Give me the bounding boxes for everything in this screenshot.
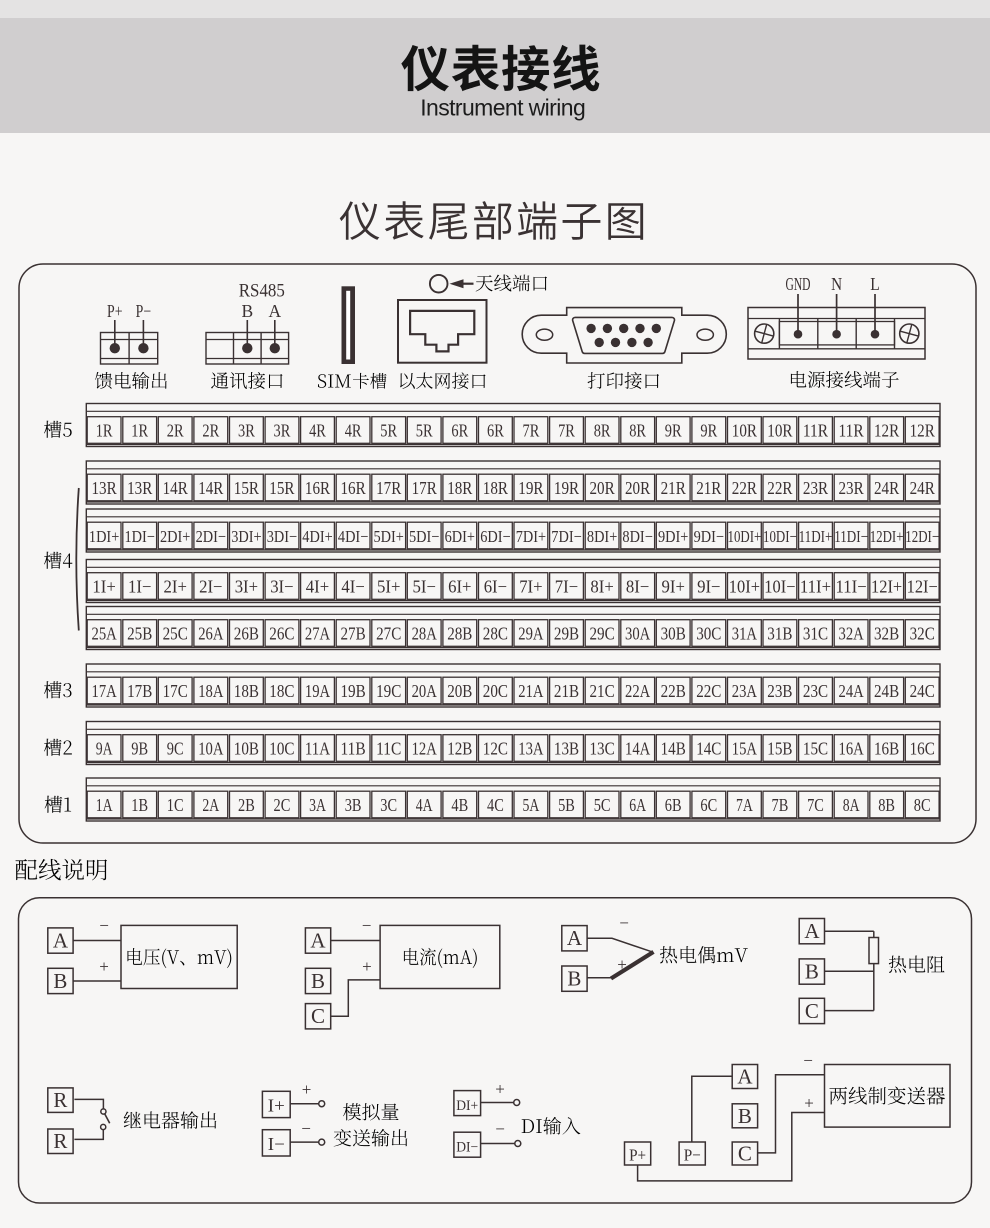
svg-text:13R: 13R xyxy=(127,478,152,498)
svg-text:30A: 30A xyxy=(625,624,650,644)
svg-text:29C: 29C xyxy=(590,624,615,644)
svg-text:B: B xyxy=(241,301,253,321)
svg-text:24C: 24C xyxy=(910,681,935,701)
svg-text:24R: 24R xyxy=(874,478,899,498)
svg-text:4R: 4R xyxy=(309,421,326,441)
svg-text:4DI−: 4DI− xyxy=(338,527,368,546)
svg-text:DI+: DI+ xyxy=(456,1098,478,1114)
svg-text:−: − xyxy=(495,1120,505,1139)
svg-text:22A: 22A xyxy=(625,681,650,701)
svg-text:31C: 31C xyxy=(803,624,828,644)
svg-text:25C: 25C xyxy=(163,624,188,644)
svg-text:8B: 8B xyxy=(878,795,895,815)
svg-text:16A: 16A xyxy=(839,739,864,759)
svg-text:21R: 21R xyxy=(661,478,686,498)
svg-text:3DI+: 3DI+ xyxy=(231,527,261,546)
svg-text:7R: 7R xyxy=(558,421,575,441)
svg-text:28B: 28B xyxy=(447,624,472,644)
svg-text:−: − xyxy=(362,916,372,935)
svg-text:13A: 13A xyxy=(518,739,543,759)
svg-text:26B: 26B xyxy=(234,624,259,644)
svg-text:8A: 8A xyxy=(843,795,860,815)
svg-text:23R: 23R xyxy=(803,478,828,498)
svg-text:9DI+: 9DI+ xyxy=(658,527,688,546)
svg-text:19B: 19B xyxy=(341,681,366,701)
svg-text:24A: 24A xyxy=(839,681,864,701)
svg-text:9I−: 9I− xyxy=(697,577,721,597)
svg-text:11DI+: 11DI+ xyxy=(799,527,833,546)
svg-text:23A: 23A xyxy=(732,681,757,701)
svg-text:2R: 2R xyxy=(167,421,184,441)
svg-text:−: − xyxy=(619,914,629,933)
svg-text:8DI+: 8DI+ xyxy=(587,527,617,546)
svg-text:6B: 6B xyxy=(665,795,682,815)
svg-text:7DI−: 7DI− xyxy=(551,527,581,546)
svg-text:27B: 27B xyxy=(341,624,366,644)
svg-text:17R: 17R xyxy=(412,478,437,498)
svg-text:1R: 1R xyxy=(131,421,148,441)
svg-text:4DI+: 4DI+ xyxy=(302,527,332,546)
svg-text:12C: 12C xyxy=(483,739,508,759)
svg-text:C: C xyxy=(311,1004,325,1028)
svg-text:1C: 1C xyxy=(167,795,184,815)
svg-text:N: N xyxy=(831,274,842,294)
svg-text:17A: 17A xyxy=(92,681,117,701)
svg-text:31B: 31B xyxy=(767,624,792,644)
svg-text:22R: 22R xyxy=(732,478,757,498)
svg-text:8R: 8R xyxy=(629,421,646,441)
svg-text:7A: 7A xyxy=(736,795,753,815)
svg-text:10I+: 10I+ xyxy=(729,577,760,597)
svg-text:+: + xyxy=(302,1080,312,1099)
svg-text:18A: 18A xyxy=(198,681,223,701)
svg-text:12DI−: 12DI− xyxy=(905,527,939,546)
svg-text:4I+: 4I+ xyxy=(306,577,330,597)
svg-text:11R: 11R xyxy=(803,421,828,441)
svg-text:23R: 23R xyxy=(839,478,864,498)
svg-text:5I+: 5I+ xyxy=(377,577,401,597)
svg-text:12I+: 12I+ xyxy=(871,577,902,597)
svg-text:10A: 10A xyxy=(198,739,223,759)
svg-text:5DI+: 5DI+ xyxy=(374,527,404,546)
svg-text:18R: 18R xyxy=(483,478,508,498)
svg-text:2A: 2A xyxy=(202,795,219,815)
svg-text:8I−: 8I− xyxy=(626,577,650,597)
svg-text:3R: 3R xyxy=(274,421,291,441)
svg-text:6A: 6A xyxy=(629,795,646,815)
svg-text:2R: 2R xyxy=(202,421,219,441)
svg-text:30C: 30C xyxy=(696,624,721,644)
svg-text:9A: 9A xyxy=(96,739,113,759)
svg-text:24R: 24R xyxy=(910,478,935,498)
svg-text:23C: 23C xyxy=(803,681,828,701)
svg-text:14B: 14B xyxy=(661,739,686,759)
svg-text:16C: 16C xyxy=(910,739,935,759)
svg-text:5DI−: 5DI− xyxy=(409,527,439,546)
svg-text:R: R xyxy=(53,1088,67,1112)
svg-text:25A: 25A xyxy=(92,624,117,644)
svg-text:3C: 3C xyxy=(380,795,397,815)
svg-text:14R: 14R xyxy=(198,478,223,498)
svg-text:2DI+: 2DI+ xyxy=(160,527,190,546)
svg-text:9B: 9B xyxy=(131,739,148,759)
svg-text:1DI−: 1DI− xyxy=(125,527,155,546)
svg-text:15R: 15R xyxy=(234,478,259,498)
svg-text:2DI−: 2DI− xyxy=(196,527,226,546)
svg-text:17C: 17C xyxy=(163,681,188,701)
svg-text:+: + xyxy=(804,1094,814,1113)
svg-text:9C: 9C xyxy=(167,739,184,759)
svg-text:4B: 4B xyxy=(451,795,468,815)
svg-text:19C: 19C xyxy=(376,681,401,701)
svg-text:28C: 28C xyxy=(483,624,508,644)
svg-text:GND: GND xyxy=(786,274,811,294)
svg-text:P−: P− xyxy=(684,1146,701,1165)
svg-text:P+: P+ xyxy=(629,1146,646,1165)
svg-text:21B: 21B xyxy=(554,681,579,701)
svg-text:15A: 15A xyxy=(732,739,757,759)
svg-text:DI−: DI− xyxy=(456,1140,478,1156)
svg-text:+: + xyxy=(617,955,627,974)
svg-text:9I+: 9I+ xyxy=(662,577,686,597)
svg-text:2I−: 2I− xyxy=(199,577,223,597)
svg-text:3I−: 3I− xyxy=(270,577,294,597)
svg-text:5A: 5A xyxy=(523,795,540,815)
svg-text:18C: 18C xyxy=(269,681,294,701)
svg-text:6I−: 6I− xyxy=(484,577,508,597)
svg-text:11C: 11C xyxy=(376,739,401,759)
svg-text:19R: 19R xyxy=(518,478,543,498)
svg-text:B: B xyxy=(567,967,581,991)
svg-text:8I+: 8I+ xyxy=(590,577,614,597)
svg-text:12B: 12B xyxy=(447,739,472,759)
svg-text:−: − xyxy=(301,1119,311,1138)
svg-text:15B: 15B xyxy=(767,739,792,759)
svg-text:3DI−: 3DI− xyxy=(267,527,297,546)
svg-text:19R: 19R xyxy=(554,478,579,498)
svg-text:1DI+: 1DI+ xyxy=(89,527,119,546)
svg-text:5I−: 5I− xyxy=(413,577,437,597)
svg-text:10DI−: 10DI− xyxy=(763,527,797,546)
svg-text:2I+: 2I+ xyxy=(164,577,188,597)
svg-text:14A: 14A xyxy=(625,739,650,759)
svg-text:24B: 24B xyxy=(874,681,899,701)
svg-text:4R: 4R xyxy=(345,421,362,441)
svg-text:10B: 10B xyxy=(234,739,259,759)
svg-text:11B: 11B xyxy=(341,739,366,759)
svg-text:26C: 26C xyxy=(269,624,294,644)
svg-text:P−: P− xyxy=(136,301,152,321)
svg-text:C: C xyxy=(738,1142,752,1166)
svg-text:22R: 22R xyxy=(767,478,792,498)
svg-text:7C: 7C xyxy=(807,795,824,815)
svg-text:10DI+: 10DI+ xyxy=(728,527,762,546)
svg-text:6DI−: 6DI− xyxy=(480,527,510,546)
svg-text:20R: 20R xyxy=(625,478,650,498)
svg-text:21R: 21R xyxy=(696,478,721,498)
svg-text:3A: 3A xyxy=(309,795,326,815)
svg-text:+: + xyxy=(495,1080,505,1099)
svg-text:3R: 3R xyxy=(238,421,255,441)
svg-text:6R: 6R xyxy=(451,421,468,441)
svg-text:9DI−: 9DI− xyxy=(694,527,724,546)
svg-text:13R: 13R xyxy=(92,478,117,498)
svg-text:8C: 8C xyxy=(914,795,931,815)
svg-text:RS485: RS485 xyxy=(239,282,285,302)
svg-text:13B: 13B xyxy=(554,739,579,759)
svg-text:L: L xyxy=(870,274,880,294)
svg-text:A: A xyxy=(804,919,820,943)
svg-text:11I+: 11I+ xyxy=(800,577,831,597)
svg-text:5B: 5B xyxy=(558,795,575,815)
svg-text:21C: 21C xyxy=(590,681,615,701)
svg-text:30B: 30B xyxy=(661,624,686,644)
svg-text:22B: 22B xyxy=(661,681,686,701)
svg-text:9R: 9R xyxy=(665,421,682,441)
svg-text:19A: 19A xyxy=(305,681,330,701)
svg-text:18B: 18B xyxy=(234,681,259,701)
svg-text:4C: 4C xyxy=(487,795,504,815)
svg-text:26A: 26A xyxy=(198,624,223,644)
svg-text:15R: 15R xyxy=(269,478,294,498)
svg-text:1R: 1R xyxy=(96,421,113,441)
svg-text:11R: 11R xyxy=(839,421,864,441)
svg-text:1I+: 1I+ xyxy=(92,577,116,597)
svg-text:20A: 20A xyxy=(412,681,437,701)
svg-text:32B: 32B xyxy=(874,624,899,644)
svg-text:10R: 10R xyxy=(767,421,792,441)
svg-text:31A: 31A xyxy=(732,624,757,644)
svg-text:+: + xyxy=(99,957,109,976)
svg-text:10C: 10C xyxy=(269,739,294,759)
svg-text:7DI+: 7DI+ xyxy=(516,527,546,546)
svg-text:17B: 17B xyxy=(127,681,152,701)
svg-text:2B: 2B xyxy=(238,795,255,815)
svg-text:10R: 10R xyxy=(732,421,757,441)
svg-text:6I+: 6I+ xyxy=(448,577,472,597)
svg-text:I+: I+ xyxy=(268,1096,285,1116)
svg-text:B: B xyxy=(738,1104,752,1128)
svg-text:28A: 28A xyxy=(412,624,437,644)
svg-text:1A: 1A xyxy=(96,795,113,815)
svg-text:3B: 3B xyxy=(345,795,362,815)
svg-text:18R: 18R xyxy=(447,478,472,498)
svg-text:B: B xyxy=(53,969,67,993)
svg-text:25B: 25B xyxy=(127,624,152,644)
svg-text:5C: 5C xyxy=(594,795,611,815)
svg-text:3I+: 3I+ xyxy=(235,577,259,597)
svg-text:7I−: 7I− xyxy=(555,577,579,597)
svg-text:P+: P+ xyxy=(107,301,123,321)
svg-text:11DI−: 11DI− xyxy=(834,527,868,546)
svg-text:16R: 16R xyxy=(305,478,330,498)
svg-text:B: B xyxy=(805,960,819,984)
svg-text:15C: 15C xyxy=(803,739,828,759)
svg-text:8DI−: 8DI− xyxy=(622,527,652,546)
svg-text:20C: 20C xyxy=(483,681,508,701)
svg-text:27C: 27C xyxy=(376,624,401,644)
svg-text:2C: 2C xyxy=(274,795,291,815)
svg-text:4I−: 4I− xyxy=(341,577,365,597)
svg-text:27A: 27A xyxy=(305,624,330,644)
svg-text:32C: 32C xyxy=(910,624,935,644)
svg-text:16R: 16R xyxy=(341,478,366,498)
svg-text:23B: 23B xyxy=(767,681,792,701)
svg-text:C: C xyxy=(805,999,819,1023)
svg-text:9R: 9R xyxy=(700,421,717,441)
svg-text:13C: 13C xyxy=(590,739,615,759)
svg-text:12DI+: 12DI+ xyxy=(870,527,904,546)
svg-text:16B: 16B xyxy=(874,739,899,759)
svg-text:5R: 5R xyxy=(416,421,433,441)
svg-text:21A: 21A xyxy=(518,681,543,701)
svg-text:20R: 20R xyxy=(590,478,615,498)
svg-text:14R: 14R xyxy=(163,478,188,498)
svg-text:6DI+: 6DI+ xyxy=(445,527,475,546)
svg-text:6R: 6R xyxy=(487,421,504,441)
svg-text:29A: 29A xyxy=(518,624,543,644)
svg-text:B: B xyxy=(311,969,325,993)
svg-text:7I+: 7I+ xyxy=(519,577,543,597)
svg-text:8R: 8R xyxy=(594,421,611,441)
svg-text:29B: 29B xyxy=(554,624,579,644)
svg-text:7B: 7B xyxy=(772,795,789,815)
svg-text:12R: 12R xyxy=(874,421,899,441)
svg-text:4A: 4A xyxy=(416,795,433,815)
svg-text:A: A xyxy=(567,926,583,950)
svg-text:Instrument wiring: Instrument wiring xyxy=(420,94,586,120)
svg-text:7R: 7R xyxy=(523,421,540,441)
svg-text:11A: 11A xyxy=(305,739,330,759)
svg-text:A: A xyxy=(53,929,69,953)
svg-text:−: − xyxy=(803,1051,813,1070)
svg-text:22C: 22C xyxy=(696,681,721,701)
svg-text:20B: 20B xyxy=(447,681,472,701)
svg-text:32A: 32A xyxy=(839,624,864,644)
svg-text:A: A xyxy=(310,929,326,953)
svg-text:11I−: 11I− xyxy=(836,577,867,597)
svg-text:10I−: 10I− xyxy=(764,577,795,597)
svg-text:1B: 1B xyxy=(131,795,148,815)
svg-text:R: R xyxy=(53,1129,67,1153)
svg-text:+: + xyxy=(362,957,372,976)
svg-text:17R: 17R xyxy=(376,478,401,498)
svg-text:14C: 14C xyxy=(696,739,721,759)
svg-text:A: A xyxy=(737,1065,753,1089)
svg-text:I−: I− xyxy=(268,1134,285,1154)
svg-text:12A: 12A xyxy=(412,739,437,759)
svg-text:6C: 6C xyxy=(700,795,717,815)
svg-text:12I−: 12I− xyxy=(907,577,938,597)
svg-text:A: A xyxy=(268,301,281,321)
svg-text:5R: 5R xyxy=(380,421,397,441)
svg-text:12R: 12R xyxy=(910,421,935,441)
svg-text:−: − xyxy=(99,916,109,935)
svg-text:1I−: 1I− xyxy=(128,577,152,597)
